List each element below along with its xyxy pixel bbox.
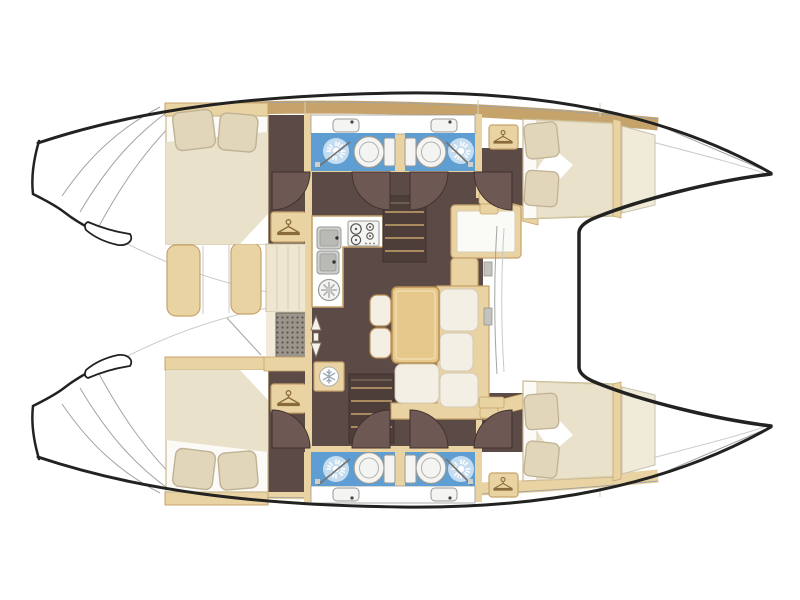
- pillow: [524, 393, 559, 430]
- bulkhead: [613, 382, 621, 481]
- washbasin: [431, 119, 457, 132]
- toilet: [354, 137, 395, 168]
- round-hob: [319, 280, 340, 301]
- pillow: [524, 170, 559, 207]
- pillow: [172, 109, 216, 152]
- entry-step: [479, 397, 504, 408]
- catamaran-floor-plan: [0, 0, 800, 600]
- floor-plan-page: [0, 0, 800, 600]
- washbasin: [431, 488, 457, 501]
- pillow: [217, 112, 258, 152]
- shower-sunburst-icon: [452, 460, 471, 479]
- refrigerator: [314, 362, 344, 391]
- wardrobe: [489, 473, 518, 497]
- washbasin: [333, 488, 359, 501]
- pillow: [523, 121, 559, 159]
- toilet: [405, 453, 446, 484]
- washbasin: [333, 119, 359, 132]
- deck-hatch: [484, 262, 492, 276]
- dining-table: [392, 287, 439, 363]
- cockpit-bench-right: [231, 243, 261, 314]
- bulkhead: [613, 119, 621, 218]
- toilet: [354, 453, 395, 484]
- pillow: [172, 448, 216, 491]
- cockpit-bench-left: [167, 245, 200, 316]
- toilet: [405, 137, 446, 168]
- stool: [370, 328, 391, 358]
- stool: [370, 295, 391, 326]
- deck-hatch: [484, 308, 492, 325]
- pillow: [218, 450, 259, 490]
- stove: [348, 221, 379, 246]
- hull-mid-port: [264, 244, 306, 371]
- pillow: [523, 440, 559, 478]
- wardrobe: [271, 384, 306, 413]
- floor-grate: [276, 313, 306, 357]
